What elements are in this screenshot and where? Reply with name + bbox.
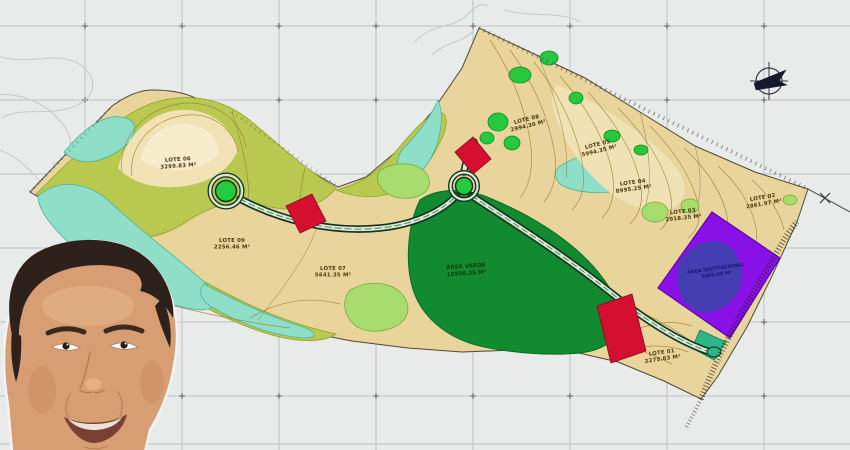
roundabout-west — [210, 175, 242, 207]
svg-text:5641.35 M²: 5641.35 M² — [315, 272, 352, 279]
svg-text:LOTE 09: LOTE 09 — [219, 238, 245, 244]
thumbnail-canvas: LOTE 06 3299.83 M² LOTE 09 2256.46 M² LO… — [0, 0, 850, 450]
presenter-photo — [4, 240, 177, 450]
nose-tip-highlight — [85, 378, 101, 390]
cheek-shadow-right — [140, 360, 164, 404]
forehead-highlight — [42, 286, 134, 326]
road-end-cap — [707, 347, 721, 357]
corner-x-marker — [820, 193, 830, 203]
svg-text:LOTE 07: LOTE 07 — [320, 266, 346, 272]
north-arrow-icon — [750, 62, 788, 100]
site-plan-map: LOTE 06 3299.83 M² LOTE 09 2256.46 M² LO… — [0, 0, 850, 450]
cheek-shadow-left — [28, 366, 56, 414]
svg-text:2256.46 M²: 2256.46 M² — [214, 244, 251, 251]
